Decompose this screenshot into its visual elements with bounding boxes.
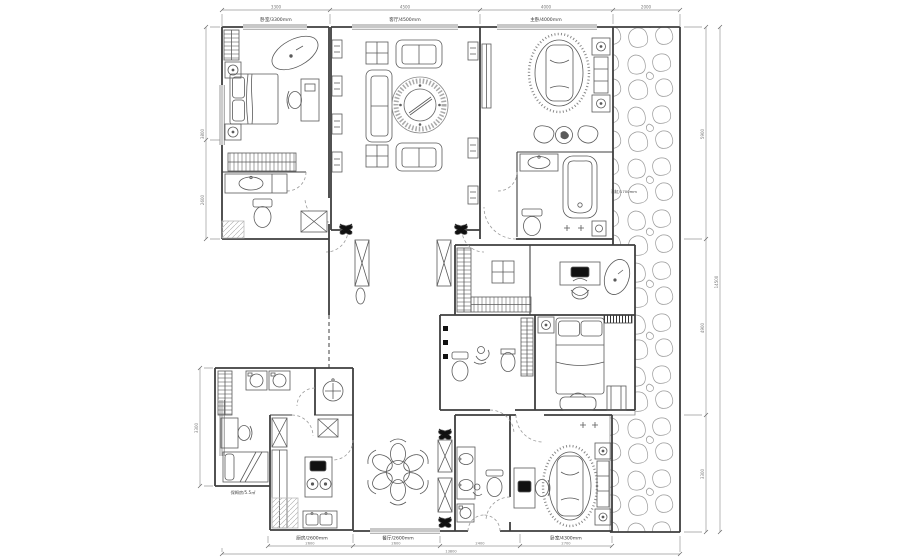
column-box (437, 240, 451, 286)
shaft-box (301, 211, 327, 232)
dim-label: 3800 (200, 128, 205, 139)
headboard-cabinet (604, 315, 632, 323)
column-box (318, 419, 338, 437)
dim-label: 5900 (700, 128, 705, 139)
room-label: 厨房/2600mm (296, 535, 328, 542)
tiled-corner (272, 498, 298, 528)
column-box (438, 478, 452, 512)
dim-label: 3300 (700, 468, 705, 479)
room-label: 卧室/4300mm (550, 535, 582, 542)
floor-plan-page: 3300 4500 4000 2000 卧室/3300mm 客厅/4500mm … (0, 0, 920, 560)
dim-label: 2400 (475, 542, 485, 546)
dim-label: 3300 (271, 5, 282, 10)
maid-room-label: 保姆房/5.5㎡ (231, 489, 257, 496)
column-box (355, 240, 369, 286)
dim-label: 4900 (700, 322, 705, 333)
floor-mat (222, 221, 244, 238)
dim-label: 3300 (194, 422, 199, 433)
dim-label: 13800 (445, 550, 457, 554)
dim-label: 2600 (200, 194, 205, 205)
column-box (272, 418, 287, 447)
dim-label: 2700 (561, 542, 571, 546)
dim-label: 2600 (391, 542, 401, 546)
room-label: 卧室/3300mm (260, 16, 292, 23)
plant-icon (438, 429, 451, 440)
dim-label: 4000 (541, 5, 552, 10)
column-box (438, 440, 452, 472)
room-label: 客厅/4500mm (389, 16, 421, 23)
dim-label: 2600 (305, 542, 315, 546)
round-rug (392, 77, 448, 133)
room-label: 主卧/4000mm (530, 16, 562, 23)
plant-icon (339, 224, 352, 235)
room-label: 餐厅/2600mm (382, 535, 414, 542)
dim-label: 2000 (641, 5, 652, 10)
dim-label: 4500 (400, 5, 411, 10)
bath-label: 浴缸/1700mm (611, 189, 637, 194)
plant-icon (454, 224, 467, 235)
floor-plan-drawing: 3300 4500 4000 2000 卧室/3300mm 客厅/4500mm … (0, 0, 920, 560)
plant-icon (438, 517, 451, 528)
dim-label: 14500 (714, 275, 719, 288)
